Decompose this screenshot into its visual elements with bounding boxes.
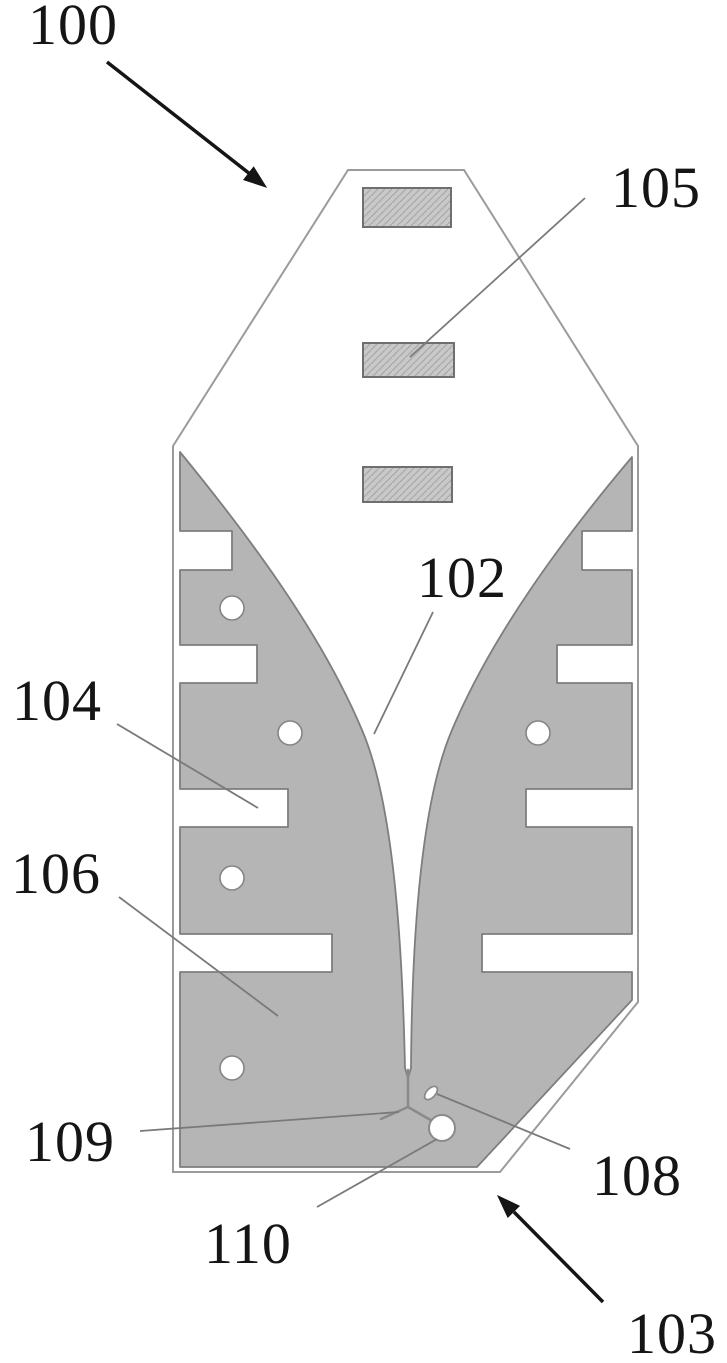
hole	[278, 721, 302, 745]
ref-label-109: 109	[25, 1109, 115, 1174]
patent-figure: 100 105 102 104 106 109 110 108 103	[0, 0, 727, 1363]
ref-label-110: 110	[204, 1211, 292, 1276]
ref-label-102: 102	[417, 545, 507, 610]
director-rect	[363, 467, 452, 502]
arrow-103-shaft	[514, 1212, 603, 1302]
antenna-diagram-canvas: 100 105 102 104 106 109 110 108 103	[0, 0, 727, 1363]
ref-label-104: 104	[12, 668, 102, 733]
director-rect	[363, 188, 451, 227]
hole	[526, 721, 550, 745]
arrow-100-shaft	[107, 62, 250, 174]
ref-label-106: 106	[11, 841, 101, 906]
hole	[220, 596, 244, 620]
director-rect	[363, 343, 454, 377]
hole	[220, 1056, 244, 1080]
ref-label-105: 105	[611, 155, 701, 220]
feed-circular-stub	[429, 1115, 455, 1141]
ref-label-103: 103	[627, 1301, 717, 1363]
ref-label-108: 108	[592, 1143, 682, 1208]
hole	[220, 866, 244, 890]
ref-label-100: 100	[28, 0, 118, 57]
